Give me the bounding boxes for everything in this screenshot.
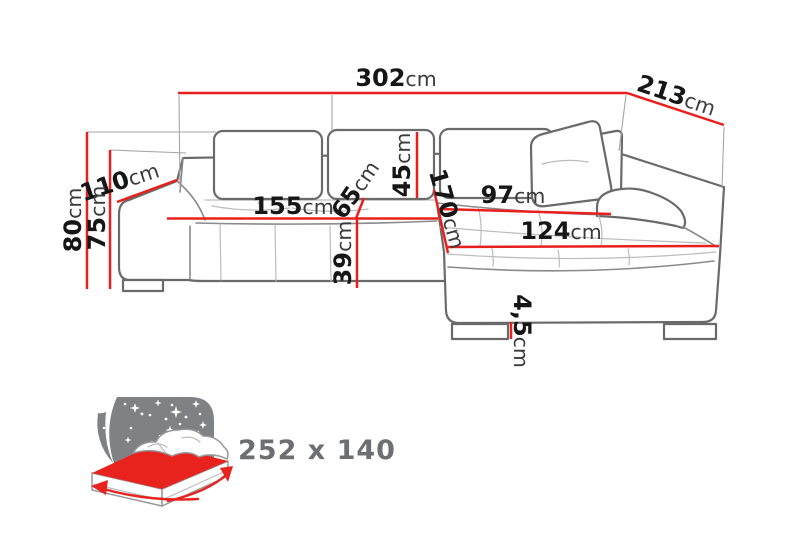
chaise-leg-left bbox=[452, 324, 508, 339]
dimension-label-total-depth: 213cm bbox=[634, 69, 720, 121]
sofa-leg-left bbox=[123, 280, 163, 291]
corner-sofa-dimension-diagram: 302cm 213cm 110cm 80cm 75cm 155cm 65cm 4… bbox=[0, 0, 800, 533]
dimension-label-chaise-width: 124cm bbox=[520, 217, 601, 245]
chaise-leg-right bbox=[664, 324, 716, 339]
sofa-bed-sleeping-function-icon bbox=[91, 397, 233, 506]
dimension-label-seat-height: 39cm bbox=[329, 221, 357, 286]
dimension-label-total-width: 302cm bbox=[355, 64, 436, 92]
dimension-label-chaise-seat-width: 97cm bbox=[481, 181, 546, 209]
dimension-label-leg-height: 4,5cm bbox=[508, 294, 536, 368]
sleeping-area-size: 252 x 140 bbox=[238, 435, 396, 466]
diagram-svg: 302cm 213cm 110cm 80cm 75cm 155cm 65cm 4… bbox=[0, 0, 800, 533]
dimension-line-chaise-width bbox=[446, 246, 719, 247]
dimension-label-armrest-height: 75cm bbox=[83, 186, 111, 251]
dimension-label-backrest-height: 45cm bbox=[388, 133, 416, 198]
dimension-label-seat-width: 155cm bbox=[252, 192, 333, 220]
back-cushion-1 bbox=[214, 131, 322, 199]
sofa-drawing bbox=[119, 121, 724, 339]
